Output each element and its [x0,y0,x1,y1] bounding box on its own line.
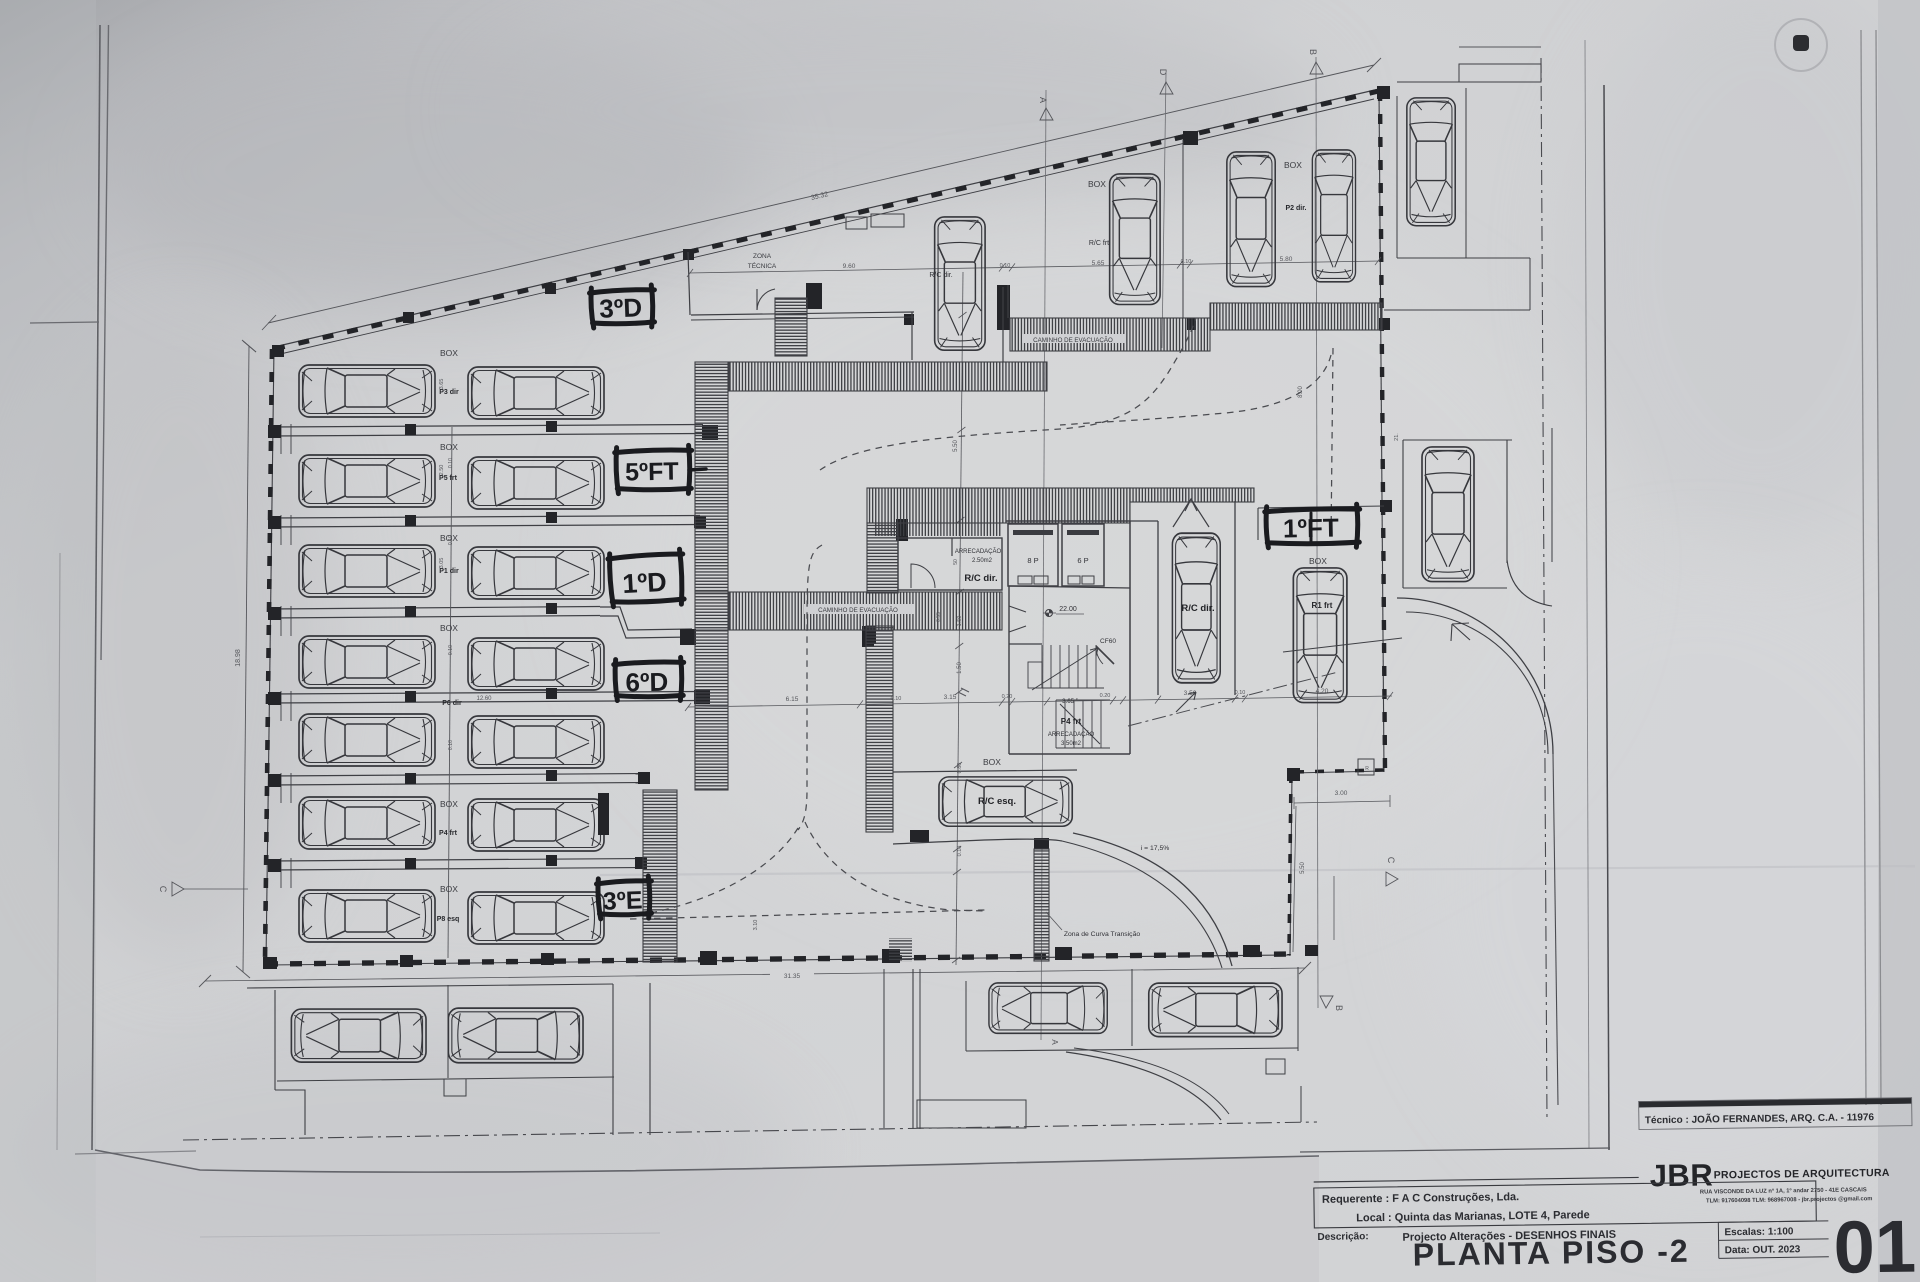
svg-text:Escalas: 1:100: Escalas: 1:100 [1724,1226,1794,1238]
svg-text:3.00: 3.00 [1335,790,1348,797]
svg-text:ARRECADAÇÃO: ARRECADAÇÃO [955,548,1002,555]
svg-text:R/C dir.: R/C dir. [964,573,997,584]
svg-text:4.20: 4.20 [1316,688,1329,695]
svg-text:2.50: 2.50 [439,465,445,476]
svg-text:BOX: BOX [1088,179,1106,189]
svg-text:21.: 21. [1394,433,1400,441]
svg-text:0.10: 0.10 [957,846,963,857]
svg-text:BOX: BOX [440,799,458,809]
svg-text:2.50m2: 2.50m2 [972,558,993,564]
svg-text:0.10: 0.10 [1181,259,1192,265]
svg-text:0.10: 0.10 [448,740,454,750]
svg-text:0.10: 0.10 [1000,263,1011,269]
svg-text:50: 50 [953,559,959,565]
svg-text:Data: OUT. 2023: Data: OUT. 2023 [1725,1244,1801,1256]
svg-text:TÉCNICA: TÉCNICA [748,261,777,270]
svg-text:1ºD: 1ºD [622,567,668,599]
svg-text:C: C [158,886,168,893]
svg-text:1.50: 1.50 [957,662,963,674]
svg-text:3ºD: 3ºD [599,292,643,323]
svg-text:BOX: BOX [440,884,458,894]
svg-text:0.10: 0.10 [448,458,454,468]
svg-text:P8 esq: P8 esq [437,916,460,923]
svg-text:D: D [1158,69,1168,76]
svg-text:9.60: 9.60 [843,263,856,270]
svg-text:JBR: JBR [1649,1157,1713,1193]
svg-text:01: 01 [1833,1205,1916,1282]
svg-text:5.50: 5.50 [1300,862,1306,874]
svg-text:0.20: 0.20 [1002,694,1013,700]
svg-text:Descrição:: Descrição: [1317,1231,1368,1243]
svg-text:0.10: 0.10 [448,535,454,545]
svg-text:5ºFT: 5ºFT [625,458,679,487]
svg-text:BOX: BOX [1284,160,1302,170]
svg-text:3.50m2: 3.50m2 [1061,741,1082,747]
svg-text:CAMINHO DE EVACUAÇÃO: CAMINHO DE EVACUAÇÃO [818,607,898,614]
svg-text:A: A [1050,1039,1059,1045]
svg-text:0.10: 0.10 [891,696,902,702]
svg-text:18.98: 18.98 [235,649,242,667]
svg-text:BOX: BOX [440,623,458,633]
svg-text:i = 17,5%: i = 17,5% [1141,845,1170,852]
svg-text:R/C dir.: R/C dir. [929,272,952,279]
svg-text:B: B [1308,49,1318,55]
svg-text:P6 dir: P6 dir [442,700,462,707]
svg-text:PROJECTOS DE ARQUITECTURA: PROJECTOS DE ARQUITECTURA [1714,1167,1890,1181]
svg-text:P4 frt: P4 frt [1061,717,1082,726]
svg-text:BOX: BOX [1309,556,1327,566]
svg-text:PLANTA PISO -2: PLANTA PISO -2 [1412,1233,1689,1273]
svg-text:A: A [1038,97,1048,103]
svg-text:BOX: BOX [983,757,1001,767]
svg-text:3.10: 3.10 [753,920,759,931]
svg-text:8 P: 8 P [1027,556,1038,565]
svg-text:12.60: 12.60 [476,696,492,702]
svg-text:Zona de Curva Transição: Zona de Curva Transição [1064,931,1141,938]
svg-text:BOX: BOX [440,348,458,358]
svg-text:31.35: 31.35 [784,973,801,980]
svg-text:CF60: CF60 [1100,638,1116,645]
svg-text:0.10: 0.10 [1235,690,1246,696]
svg-text:6 P: 6 P [1077,556,1088,565]
svg-text:8.00: 8.00 [1298,386,1304,398]
svg-text:0.80: 0.80 [957,763,963,774]
svg-text:0.20: 0.20 [1100,693,1111,699]
svg-text:5.65: 5.65 [1092,260,1105,267]
svg-text:0.10: 0.10 [448,645,454,655]
svg-text:6.15: 6.15 [786,696,799,703]
svg-text:R/C frt: R/C frt [1089,240,1109,247]
svg-text:5.50: 5.50 [953,440,959,452]
svg-text:0.55: 0.55 [936,612,942,622]
svg-text:R1 frt: R1 frt [1312,601,1333,610]
svg-text:1.50: 1.50 [957,616,963,627]
svg-text:3ºE: 3ºE [602,886,643,915]
svg-text:22.00: 22.00 [1059,606,1077,613]
svg-text:R/C dir.: R/C dir. [1181,603,1214,614]
svg-text:3.15: 3.15 [944,694,957,701]
svg-text:P4 frt: P4 frt [439,830,458,837]
svg-text:R: R [1365,766,1369,772]
svg-text:3.65: 3.65 [439,379,445,390]
svg-text:CAMINHO DE EVACUAÇÃO: CAMINHO DE EVACUAÇÃO [1033,337,1113,344]
svg-text:5.80: 5.80 [1280,256,1293,263]
svg-text:B: B [1334,1005,1344,1011]
svg-text:C: C [1386,857,1396,864]
svg-text:6ºD: 6ºD [625,667,668,698]
svg-text:R/C esq.: R/C esq. [978,796,1016,807]
svg-text:3.05: 3.05 [439,558,445,569]
svg-text:ARRECADAÇÃO: ARRECADAÇÃO [1048,731,1095,738]
svg-text:BOX: BOX [440,442,458,452]
svg-text:P2 dir.: P2 dir. [1285,205,1306,212]
svg-text:ZONA: ZONA [753,253,772,260]
